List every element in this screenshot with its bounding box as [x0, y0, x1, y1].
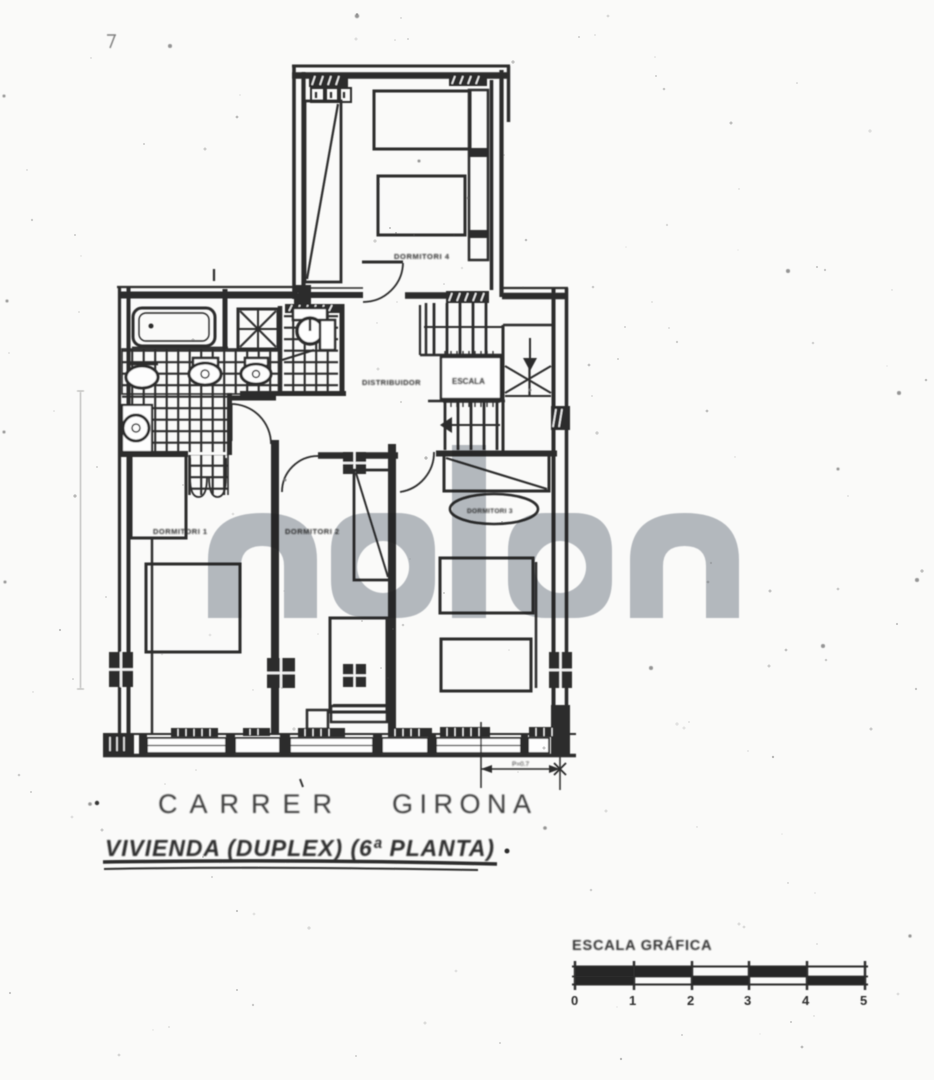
- svg-text:5: 5: [860, 993, 867, 1008]
- svg-text:P=0.7: P=0.7: [512, 761, 530, 768]
- svg-text:VIVIENDA (DUPLEX) (6ª PLANTA): VIVIENDA (DUPLEX) (6ª PLANTA): [105, 835, 495, 861]
- svg-text:4: 4: [802, 993, 810, 1008]
- svg-text:0: 0: [571, 993, 578, 1008]
- svg-text:DORMITORI 3: DORMITORI 3: [467, 508, 513, 515]
- svg-text:ESCALA: ESCALA: [452, 377, 485, 386]
- svg-text:DORMITORI 4: DORMITORI 4: [394, 252, 450, 261]
- svg-text:DORMITORI 2: DORMITORI 2: [285, 527, 340, 536]
- svg-text:3: 3: [744, 993, 751, 1008]
- svg-text:DISTRIBUIDOR: DISTRIBUIDOR: [362, 378, 421, 387]
- svg-text:DORMITORI 1: DORMITORI 1: [153, 527, 208, 536]
- svg-text:ESCALA GRÁFICA: ESCALA GRÁFICA: [572, 937, 712, 954]
- svg-text:2: 2: [687, 993, 694, 1008]
- svg-text:CARRER: CARRER: [158, 789, 344, 819]
- svg-text:GIRONA: GIRONA: [392, 789, 538, 819]
- svg-text:1: 1: [629, 993, 636, 1008]
